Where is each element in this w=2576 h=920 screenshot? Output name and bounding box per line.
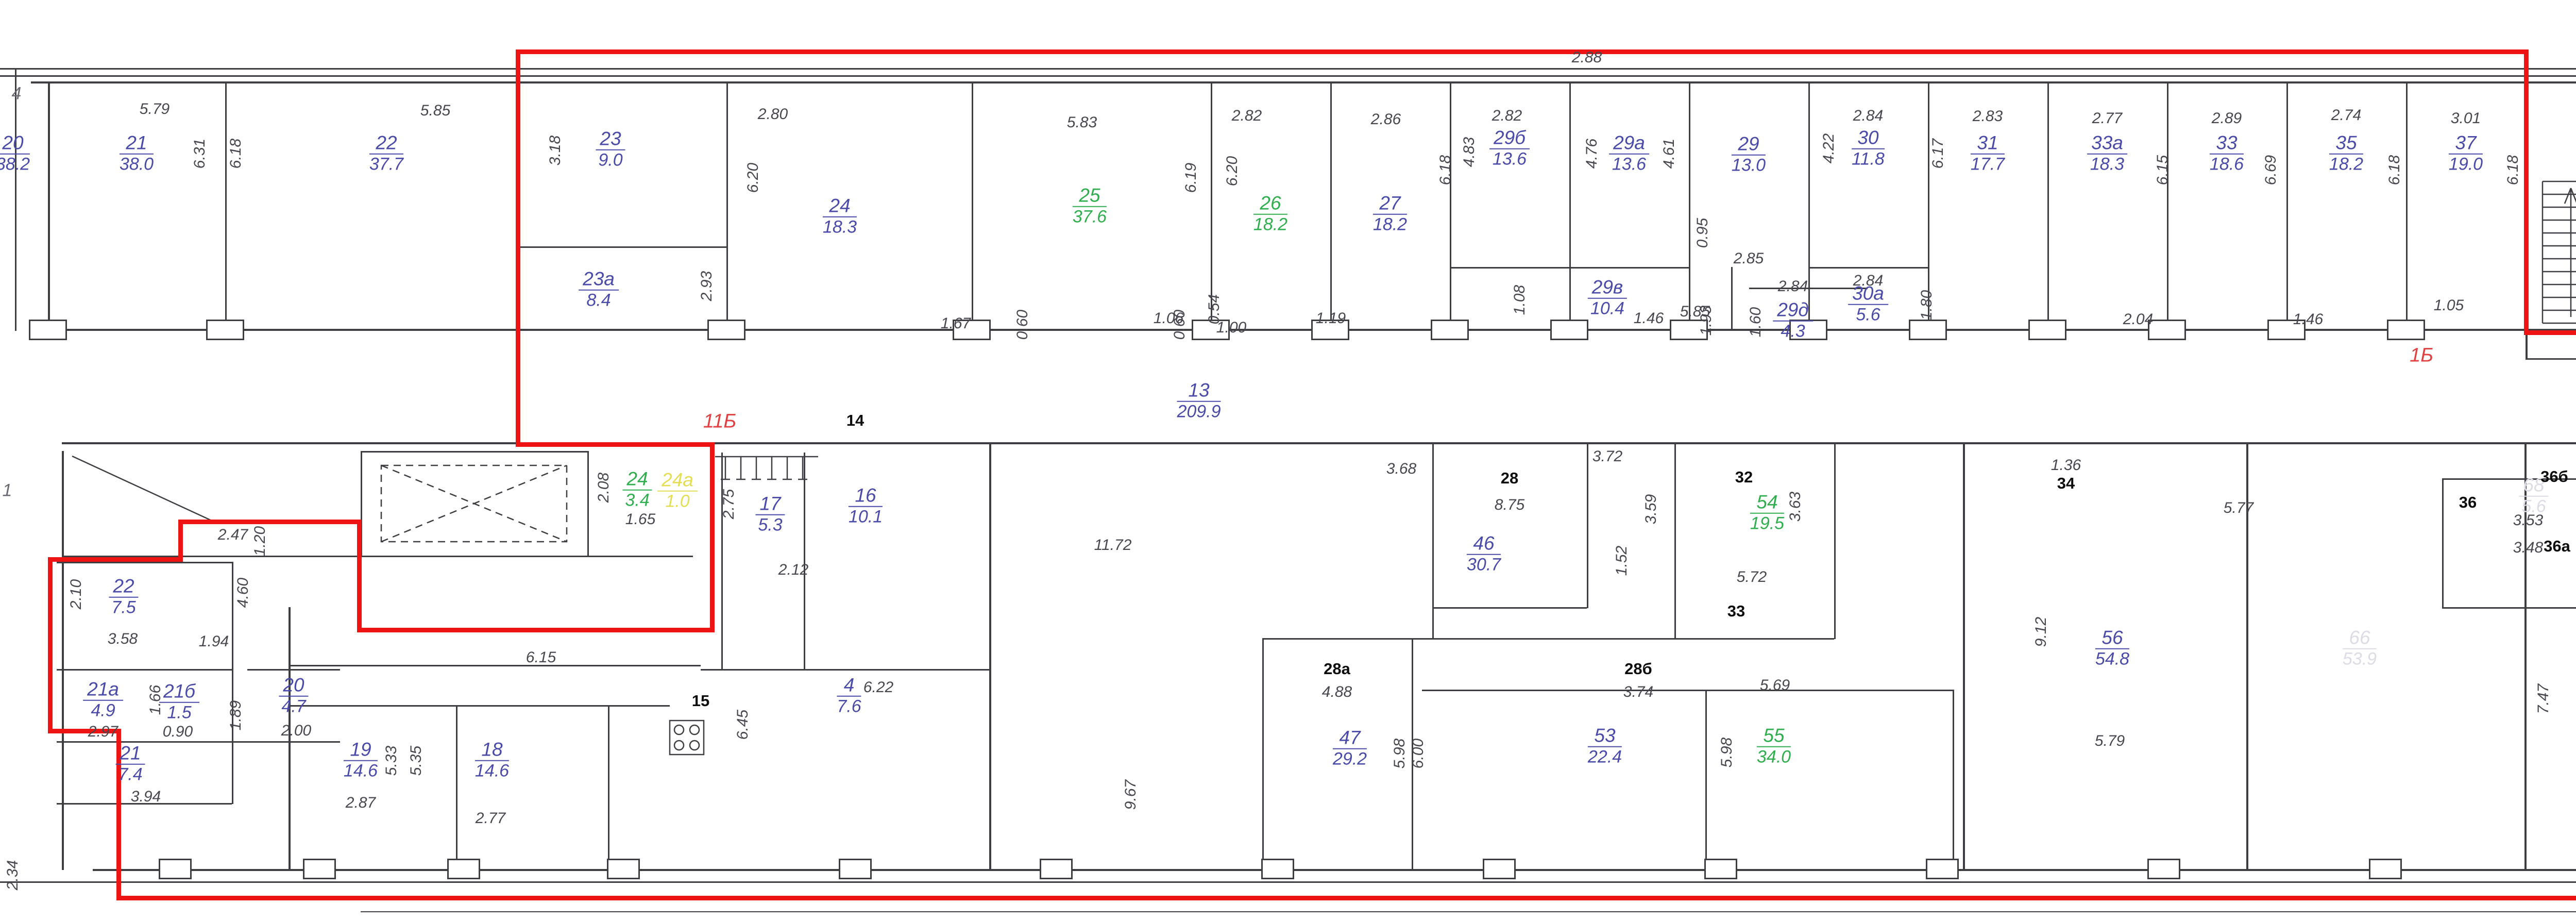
room-area: 34.0 xyxy=(1757,747,1791,767)
dimension-label: 11.72 xyxy=(1094,537,1132,554)
window xyxy=(1909,320,1947,340)
room-area: 18.2 xyxy=(1373,215,1407,235)
dimension-label: 1.06 xyxy=(1154,310,1183,327)
room-label-29д: 29д4.3 xyxy=(1773,300,1813,341)
window xyxy=(839,859,872,879)
room-area: 4.9 xyxy=(83,701,123,721)
elevator-icon xyxy=(381,465,567,542)
red-boundary-segment xyxy=(357,628,715,632)
wall xyxy=(587,451,589,557)
room-label-33: 3318.6 xyxy=(2210,133,2244,174)
zone-label-36а: 36а xyxy=(2544,537,2570,556)
dimension-label: 1.46 xyxy=(2293,311,2323,328)
dimension-label: 6.18 xyxy=(227,139,245,169)
room-label-35: 3518.2 xyxy=(2329,133,2363,174)
window xyxy=(707,320,745,340)
dimension-label: 2.12 xyxy=(778,561,808,579)
room-area: 8.4 xyxy=(579,291,619,310)
window xyxy=(607,859,640,879)
dimension-label: 6.31 xyxy=(191,139,209,169)
room-label-19: 1914.6 xyxy=(344,740,378,781)
room-label-30: 3011.8 xyxy=(1852,128,1885,169)
room-number: 4 xyxy=(837,676,861,697)
room-area: 53.9 xyxy=(2343,649,2377,669)
dimension-label: 3.48 xyxy=(2513,539,2543,557)
room-label-21а: 21а4.9 xyxy=(83,680,123,721)
room-label-26: 2618.2 xyxy=(1253,194,1287,235)
dimension-label: 3.18 xyxy=(547,136,564,165)
room-area: 18.2 xyxy=(1253,215,1287,235)
room-label-24: 2418.3 xyxy=(823,196,857,237)
dimension-label: 6.18 xyxy=(2504,155,2522,185)
dimension-label: 5.79 xyxy=(140,101,170,118)
red-section-label-1Б: 1Б xyxy=(2410,345,2433,367)
dimension-label: 2.47 xyxy=(218,526,248,544)
wall xyxy=(1432,442,1434,639)
dimension-label: 4.60 xyxy=(234,578,252,608)
room-area: 10.4 xyxy=(1588,299,1627,319)
wall xyxy=(48,81,50,331)
edge-label: 4 xyxy=(12,84,22,104)
dimension-label: 2.77 xyxy=(2092,110,2122,127)
room-area: 18.2 xyxy=(2329,155,2363,174)
dimension-label: 1.05 xyxy=(2434,297,2464,314)
red-boundary-segment xyxy=(178,520,362,524)
room-area: 29.2 xyxy=(1333,749,1367,769)
red-section-label-11Б: 11Б xyxy=(703,411,736,433)
wall xyxy=(2526,358,2576,360)
room-number: 21б xyxy=(159,682,199,703)
room-number: 21а xyxy=(83,680,123,701)
window xyxy=(447,859,480,879)
wall xyxy=(1262,638,1834,640)
room-label-4: 47.6 xyxy=(837,676,861,716)
dimension-label: 1.66 xyxy=(147,685,164,715)
room-label-18: 1814.6 xyxy=(475,740,509,781)
room-number: 20 xyxy=(0,133,30,155)
room-area: 14.6 xyxy=(344,761,378,781)
wall xyxy=(456,705,457,870)
stove-burner-icon xyxy=(690,725,699,734)
dimension-label: 5.35 xyxy=(408,746,425,776)
dimension-label: 2.74 xyxy=(2331,107,2361,124)
room-area: 18.3 xyxy=(823,218,857,237)
dimension-label: 6.15 xyxy=(526,649,556,666)
dimension-label: 0.90 xyxy=(163,723,193,741)
dimension-label: 3.59 xyxy=(1642,494,1660,524)
room-label-16: 1610.1 xyxy=(849,486,883,527)
room-label-55: 5534.0 xyxy=(1757,726,1791,767)
room-area: 4.7 xyxy=(279,697,308,716)
wall xyxy=(0,881,2576,883)
dimension-label: 6.15 xyxy=(2154,155,2172,185)
wall xyxy=(1432,607,1587,609)
elevator-icon xyxy=(381,465,567,542)
wall xyxy=(1422,690,1953,691)
window xyxy=(1040,859,1073,879)
room-number: 23 xyxy=(596,129,625,150)
dimension-label: 2.04 xyxy=(2123,311,2153,328)
wall xyxy=(2406,81,2408,331)
wall xyxy=(62,442,2576,444)
room-area: 30.7 xyxy=(1467,555,1501,575)
room-label-53: 5322.4 xyxy=(1588,726,1622,767)
room-number: 27 xyxy=(1373,194,1407,215)
room-area: 10.1 xyxy=(849,507,883,527)
room-area: 9.0 xyxy=(596,150,625,170)
room-area: 19.5 xyxy=(1750,514,1784,533)
room-area: 14.6 xyxy=(475,761,509,781)
stove-burner-icon xyxy=(674,725,684,734)
dimension-label: 5.85 xyxy=(420,102,450,120)
room-label-29б: 29б13.6 xyxy=(1489,128,1530,169)
room-number: 29 xyxy=(1732,135,1766,156)
dimension-label: 1.36 xyxy=(2051,457,2081,474)
window xyxy=(2147,859,2180,879)
room-area: 19.0 xyxy=(2449,155,2483,174)
red-boundary-segment xyxy=(516,49,2529,54)
red-boundary-segment xyxy=(48,557,53,733)
room-number: 56 xyxy=(2095,628,2129,649)
wall xyxy=(1834,442,1836,639)
dimension-label: 2.93 xyxy=(698,271,716,301)
zone-label-36: 36 xyxy=(2459,493,2477,512)
wall xyxy=(15,68,16,331)
dimension-label: 3.53 xyxy=(2513,512,2543,529)
red-boundary-segment xyxy=(2524,330,2576,335)
dimension-label: 5.85 xyxy=(1680,303,1710,321)
dimension-label: 4.22 xyxy=(1820,133,1838,163)
zone-label-28а: 28а xyxy=(1324,660,1350,678)
dimension-label: 1.80 xyxy=(1918,290,1936,320)
room-label-21б: 21б1.5 xyxy=(159,682,199,723)
dimension-label: 1.08 xyxy=(1511,285,1529,315)
room-number: 20 xyxy=(279,676,308,697)
room-area: 1.0 xyxy=(657,492,698,511)
dimension-label: 6.22 xyxy=(863,679,893,696)
wall xyxy=(361,451,587,453)
red-boundary-segment xyxy=(516,49,520,446)
dimension-label: 1.19 xyxy=(1316,310,1346,327)
dimension-label: 5.72 xyxy=(1737,568,1767,586)
room-area: 22.4 xyxy=(1588,747,1622,767)
dimension-label: 2.88 xyxy=(1572,49,1602,66)
zone-label-14: 14 xyxy=(846,411,864,430)
dimension-label: 2.84 xyxy=(1853,272,1883,290)
wall xyxy=(2167,81,2168,331)
room-number: 54 xyxy=(1750,493,1784,514)
dimension-label: 4.88 xyxy=(1322,683,1352,701)
dimension-label: 5.33 xyxy=(383,746,400,776)
room-label-29а: 29а13.6 xyxy=(1609,133,1649,174)
room-number: 30 xyxy=(1852,128,1885,149)
dimension-label: 3.63 xyxy=(1787,492,1804,522)
room-label-27: 2718.2 xyxy=(1373,194,1407,235)
dimension-label: 4.76 xyxy=(1583,139,1601,169)
room-number: 29б xyxy=(1489,128,1530,149)
red-boundary-segment xyxy=(2524,49,2529,335)
room-label-56: 5654.8 xyxy=(2095,628,2129,669)
window xyxy=(1704,859,1737,879)
room-number: 55 xyxy=(1757,726,1791,747)
window xyxy=(1926,859,1959,879)
stove-icon xyxy=(670,721,704,755)
dimension-label: 5.98 xyxy=(1391,739,1409,768)
wall xyxy=(1587,442,1588,608)
room-area: 18.3 xyxy=(2087,155,2127,174)
red-boundary-segment xyxy=(357,520,362,632)
wall xyxy=(2442,478,2444,608)
wall xyxy=(1674,442,1676,639)
room-label-25: 2537.6 xyxy=(1073,186,1107,227)
room-area: 54.8 xyxy=(2095,649,2129,669)
room-number: 53 xyxy=(1588,726,1622,747)
window xyxy=(2028,320,2066,340)
room-label-17: 175.3 xyxy=(755,494,785,535)
dimension-label: 5.98 xyxy=(1718,738,1736,767)
wall xyxy=(1953,690,1954,870)
room-number: 18 xyxy=(475,740,509,761)
room-number: 13 xyxy=(1177,381,1221,402)
room-area: 13.0 xyxy=(1732,156,1766,175)
wall xyxy=(31,81,2576,83)
window xyxy=(1483,859,1516,879)
room-number: 29в xyxy=(1588,278,1627,299)
room-area: 13.6 xyxy=(1609,155,1649,174)
dimension-label: 6.69 xyxy=(2262,155,2280,185)
wall xyxy=(2442,607,2576,609)
room-label-30а: 30а5.6 xyxy=(1848,284,1888,325)
room-number: 22 xyxy=(369,133,403,155)
room-label-21: 217.4 xyxy=(115,744,145,784)
room-label-29в: 29в10.4 xyxy=(1588,278,1627,319)
wall xyxy=(1689,81,1690,331)
wall xyxy=(57,741,340,743)
zone-label-34: 34 xyxy=(2057,474,2075,493)
window xyxy=(2387,320,2425,340)
dimension-label: 2.87 xyxy=(346,794,376,812)
room-label-37: 3719.0 xyxy=(2449,133,2483,174)
dimension-label: 6.45 xyxy=(734,710,752,740)
elevator-icon xyxy=(381,465,567,542)
window xyxy=(1431,320,1469,340)
dimension-label: 3.68 xyxy=(1386,460,1416,478)
dimension-label: 6.20 xyxy=(744,163,762,193)
dimension-label: 2.82 xyxy=(1492,107,1522,125)
room-label-46: 4630.7 xyxy=(1467,534,1501,575)
dimension-label: 2.85 xyxy=(1734,250,1764,267)
dimension-label: 2.10 xyxy=(67,579,85,609)
window xyxy=(303,859,336,879)
room-number: 16 xyxy=(849,486,883,507)
room-label-23а: 23а8.4 xyxy=(579,270,619,310)
wall xyxy=(1330,81,1332,331)
wall xyxy=(1808,267,1928,269)
wall xyxy=(608,705,609,870)
dimension-label: 1.46 xyxy=(1634,310,1664,327)
zone-label-28б: 28б xyxy=(1624,660,1652,678)
room-number: 24 xyxy=(823,196,857,218)
room-number: 29а xyxy=(1609,133,1649,155)
wall xyxy=(1963,442,1965,870)
dimension-label: 2.77 xyxy=(476,810,505,827)
wall xyxy=(57,562,232,563)
dimension-label: 5.83 xyxy=(1067,114,1097,131)
wall xyxy=(0,75,2576,77)
dimension-label: 0.60 xyxy=(1014,310,1031,340)
dimension-label: 1.20 xyxy=(251,526,269,556)
dimension-label: 5.77 xyxy=(2224,499,2253,517)
wall xyxy=(1705,690,1707,870)
dimension-label: 3.72 xyxy=(1592,448,1622,465)
dimension-label: 8.75 xyxy=(1495,496,1524,514)
dimension-label: 2.08 xyxy=(595,473,613,503)
room-number: 29д xyxy=(1773,300,1813,322)
window xyxy=(206,320,244,340)
room-area: 11.8 xyxy=(1852,149,1885,169)
dimension-label: 2.34 xyxy=(4,860,22,890)
room-area: 7.6 xyxy=(837,697,861,716)
room-label-66: 6653.9 xyxy=(2343,628,2377,669)
wedge-line xyxy=(72,456,214,522)
room-number: 33а xyxy=(2087,133,2127,155)
window xyxy=(29,320,67,340)
room-area: 37.7 xyxy=(369,155,403,174)
window xyxy=(159,859,192,879)
room-label-24а: 24а1.0 xyxy=(657,471,698,511)
dimension-label: 2.82 xyxy=(1232,107,1262,125)
stairs-up-arrow-icon xyxy=(2571,188,2576,204)
room-area: 38.0 xyxy=(120,155,154,174)
dimension-label: 7.47 xyxy=(2535,684,2552,714)
dimension-label: 2.97 xyxy=(88,723,118,741)
dimension-label: 0.95 xyxy=(1694,218,1711,248)
wall xyxy=(721,453,723,670)
room-number: 66 xyxy=(2343,628,2377,649)
dimension-label: 6.18 xyxy=(1437,155,1454,185)
dimension-label: 0.54 xyxy=(1206,294,1223,324)
window xyxy=(2148,320,2186,340)
dimension-label: 6.17 xyxy=(1929,139,1947,169)
room-label-24: 243.4 xyxy=(622,470,652,510)
wall xyxy=(972,81,973,331)
wall xyxy=(1211,81,1212,331)
dimension-label: 3.94 xyxy=(131,788,161,806)
wall xyxy=(1450,81,1451,331)
wall xyxy=(225,81,227,331)
dimension-label: 1.89 xyxy=(227,700,245,730)
dimension-label: 2.84 xyxy=(1778,278,1808,295)
room-area: 18.6 xyxy=(2210,155,2244,174)
room-number: 21 xyxy=(115,744,145,765)
room-number: 31 xyxy=(1971,133,2005,155)
wall xyxy=(1731,267,1733,330)
room-number: 47 xyxy=(1333,728,1367,749)
dimension-label: 6.18 xyxy=(2386,155,2403,185)
room-label-22: 2237.7 xyxy=(369,133,403,174)
dimension-label: 6.00 xyxy=(1410,739,1427,768)
zone-label-32: 32 xyxy=(1735,468,1753,487)
wall xyxy=(2047,81,2049,331)
room-number: 23а xyxy=(579,270,619,291)
wall xyxy=(2286,81,2288,331)
room-area: 37.6 xyxy=(1073,207,1107,227)
wall xyxy=(726,81,728,331)
room-area: 5.3 xyxy=(755,515,785,535)
wall xyxy=(57,669,232,671)
window xyxy=(1261,859,1294,879)
window xyxy=(2369,859,2402,879)
room-area: 4.3 xyxy=(1773,322,1813,341)
dimension-label: 6.20 xyxy=(1224,156,1241,186)
dimension-label: 3.58 xyxy=(108,630,138,648)
dimension-label: 4.61 xyxy=(1660,139,1678,169)
dimension-label: 2.00 xyxy=(281,722,311,740)
room-label-22: 227.5 xyxy=(109,577,138,617)
wall xyxy=(701,669,989,671)
dimension-label: 2.89 xyxy=(2212,110,2242,127)
dimension-label: 2.75 xyxy=(720,489,738,519)
zone-label-15: 15 xyxy=(692,692,709,710)
dimension-label: 2.83 xyxy=(1973,108,2003,125)
wall xyxy=(1808,81,1810,331)
dimension-label: 6.19 xyxy=(1182,163,1200,193)
dimension-label: 9.67 xyxy=(1122,780,1140,810)
room-label-20: 204.7 xyxy=(279,676,308,716)
wall xyxy=(289,705,670,707)
dimension-label: 1.60 xyxy=(1747,307,1765,337)
room-label-13: 13209.9 xyxy=(1177,381,1221,422)
room-area: 17.7 xyxy=(1971,155,2005,174)
room-number: 33 xyxy=(2210,133,2244,155)
room-number: 25 xyxy=(1073,186,1107,207)
window xyxy=(1550,320,1588,340)
room-area: 209.9 xyxy=(1177,402,1221,422)
room-number: 37 xyxy=(2449,133,2483,155)
room-label-20: 2038.2 xyxy=(0,133,30,174)
dimension-label: 3.74 xyxy=(1623,683,1653,701)
wall xyxy=(62,451,64,870)
dimension-label: 5.79 xyxy=(2095,732,2125,750)
zone-label-36б: 36б xyxy=(2540,467,2568,486)
stairs-up-arrow-icon xyxy=(2565,188,2571,204)
wall xyxy=(989,442,991,870)
room-area: 5.6 xyxy=(1848,305,1888,325)
wall xyxy=(1569,81,1571,331)
zone-label-28: 28 xyxy=(1501,469,1518,488)
edge-label: 1 xyxy=(3,481,12,501)
wall xyxy=(232,562,233,804)
red-boundary-segment xyxy=(48,557,183,562)
wall xyxy=(361,556,587,557)
dimension-label: 2.84 xyxy=(1853,107,1883,125)
room-label-47: 4729.2 xyxy=(1333,728,1367,769)
room-area: 13.6 xyxy=(1489,149,1530,169)
wall xyxy=(1262,638,1264,870)
room-label-23: 239.0 xyxy=(596,129,625,170)
room-number: 35 xyxy=(2329,133,2363,155)
dimension-label: 4.83 xyxy=(1461,137,1478,167)
red-boundary-segment xyxy=(178,520,183,562)
dimension-label: 1.94 xyxy=(199,633,229,650)
dimension-label: 2.80 xyxy=(758,106,788,123)
room-area: 38.2 xyxy=(0,155,30,174)
room-label-33а: 33а18.3 xyxy=(2087,133,2127,174)
room-label-29: 2913.0 xyxy=(1732,135,1766,175)
zone-label-33: 33 xyxy=(1727,602,1745,621)
dimension-label: 1.65 xyxy=(625,511,655,528)
dimension-label: 2.86 xyxy=(1371,111,1401,128)
